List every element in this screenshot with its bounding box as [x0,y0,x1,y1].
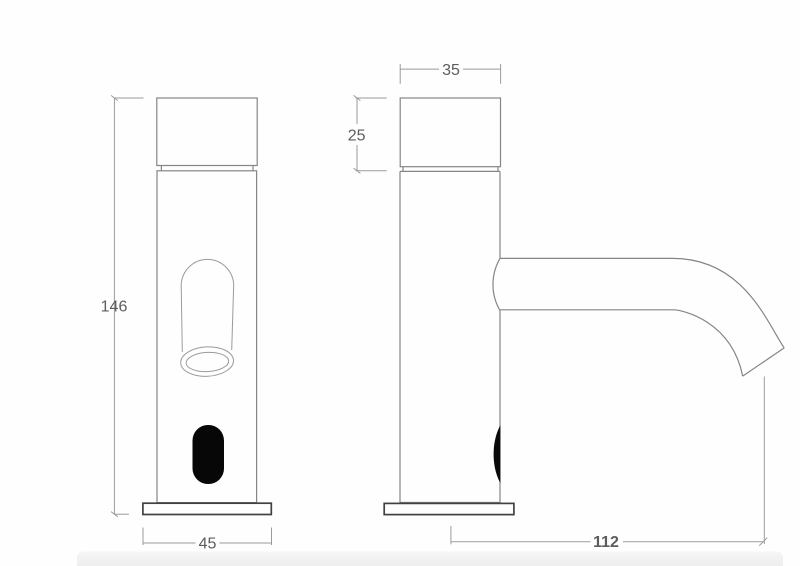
svg-text:35: 35 [442,62,460,79]
svg-text:25: 25 [348,127,366,144]
svg-text:146: 146 [101,299,128,316]
svg-text:45: 45 [199,536,217,553]
svg-text:112: 112 [593,534,619,551]
